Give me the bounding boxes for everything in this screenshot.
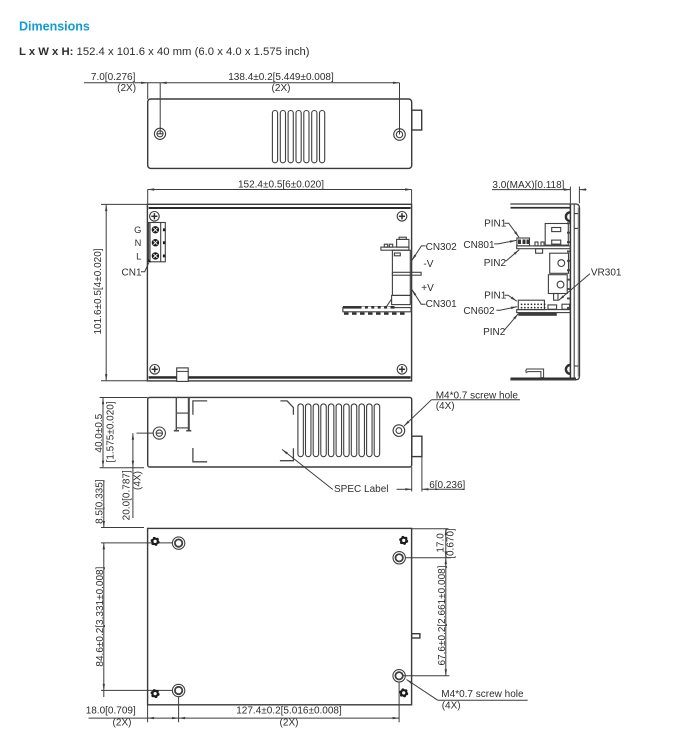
svg-text:PIN1: PIN1 xyxy=(484,290,507,301)
svg-text:(4X): (4X) xyxy=(442,700,461,711)
svg-text:+V: +V xyxy=(421,283,434,294)
svg-text:20.0[0.787]: 20.0[0.787] xyxy=(121,470,132,520)
svg-text:18.0[0.709]: 18.0[0.709] xyxy=(86,706,136,717)
svg-text:[1.575±0.020]: [1.575±0.020] xyxy=(105,401,116,462)
svg-text:SPEC Label: SPEC Label xyxy=(334,484,388,495)
svg-text:-V: -V xyxy=(423,259,433,270)
svg-text:152.4±0.5[6±0.020]: 152.4±0.5[6±0.020] xyxy=(238,180,324,191)
svg-text:(4X): (4X) xyxy=(133,471,144,490)
svg-text:VR301: VR301 xyxy=(591,267,622,278)
svg-text:PIN2: PIN2 xyxy=(484,258,507,269)
svg-text:(2X): (2X) xyxy=(280,718,299,729)
svg-text:(2X): (2X) xyxy=(272,83,291,94)
svg-text:Dimensions: Dimensions xyxy=(19,20,90,34)
svg-text:127.4±0.2[5.016±0.008]: 127.4±0.2[5.016±0.008] xyxy=(236,706,342,717)
svg-text:138.4±0.2[5.449±0.008]: 138.4±0.2[5.449±0.008] xyxy=(228,72,334,83)
svg-text:(2X): (2X) xyxy=(117,83,136,94)
svg-text:7.0[0.276]: 7.0[0.276] xyxy=(91,72,136,83)
svg-text:PIN1: PIN1 xyxy=(484,219,507,230)
svg-text:PIN2: PIN2 xyxy=(483,327,506,338)
svg-text:L x W x H: 152.4 x 101.6 x 40: L x W x H: 152.4 x 101.6 x 40 mm (6.0 x … xyxy=(19,46,310,58)
svg-text:CN801: CN801 xyxy=(463,240,495,251)
svg-text:(4X): (4X) xyxy=(436,401,455,412)
svg-text:6[0.236]: 6[0.236] xyxy=(429,480,465,491)
svg-text:CN301: CN301 xyxy=(426,299,458,310)
svg-text:M4*0.7 screw hole: M4*0.7 screw hole xyxy=(441,689,524,700)
svg-text:CN1: CN1 xyxy=(122,267,142,278)
svg-text:L: L xyxy=(136,251,141,261)
svg-text:G: G xyxy=(134,225,141,235)
svg-text:(2X): (2X) xyxy=(113,718,132,729)
svg-text:CN602: CN602 xyxy=(463,306,495,317)
svg-text:[0.670]: [0.670] xyxy=(445,528,456,559)
svg-text:N: N xyxy=(135,238,142,248)
svg-text:CN302: CN302 xyxy=(426,242,458,253)
svg-text:101.6±0.5[4±0.020]: 101.6±0.5[4±0.020] xyxy=(93,248,104,334)
